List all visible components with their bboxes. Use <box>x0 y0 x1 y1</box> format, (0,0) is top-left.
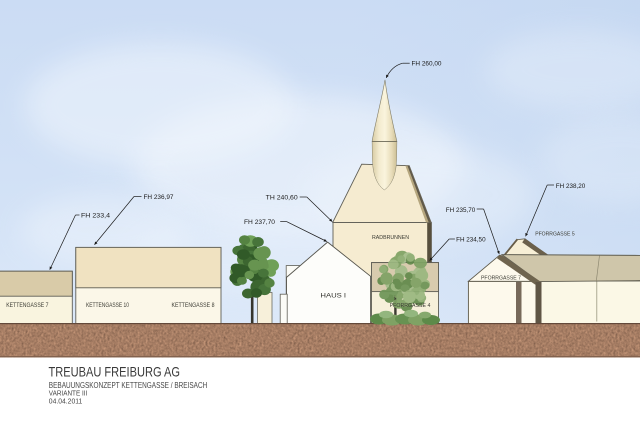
svg-text:FH 233,4: FH 233,4 <box>81 212 110 219</box>
svg-text:TH 240,60: TH 240,60 <box>266 194 298 201</box>
svg-text:FH 260,00: FH 260,00 <box>412 61 442 68</box>
svg-text:FH 234,50: FH 234,50 <box>456 237 486 244</box>
svg-text:PFORRGASSE 4: PFORRGASSE 4 <box>390 303 431 309</box>
svg-text:FH 237,70: FH 237,70 <box>244 219 275 226</box>
svg-text:KETTENGASSE 8: KETTENGASSE 8 <box>172 303 216 309</box>
svg-text:KETTENGASSE 7: KETTENGASSE 7 <box>6 303 49 309</box>
svg-text:04.04.2011: 04.04.2011 <box>49 396 83 405</box>
svg-text:PFORRGASSE 5: PFORRGASSE 5 <box>535 231 575 237</box>
svg-text:FH 236,97: FH 236,97 <box>144 194 174 201</box>
svg-text:HAUS I: HAUS I <box>320 293 346 300</box>
svg-text:FH 238,20: FH 238,20 <box>556 183 586 190</box>
svg-text:RADBRUNNEN: RADBRUNNEN <box>372 235 409 241</box>
svg-text:PFORRGASSE 7: PFORRGASSE 7 <box>481 275 521 281</box>
svg-text:TREUBAU FREIBURG AG: TREUBAU FREIBURG AG <box>49 365 181 380</box>
svg-text:KETTENGASSE 10: KETTENGASSE 10 <box>86 303 130 309</box>
svg-text:FH 235,70: FH 235,70 <box>446 207 476 214</box>
